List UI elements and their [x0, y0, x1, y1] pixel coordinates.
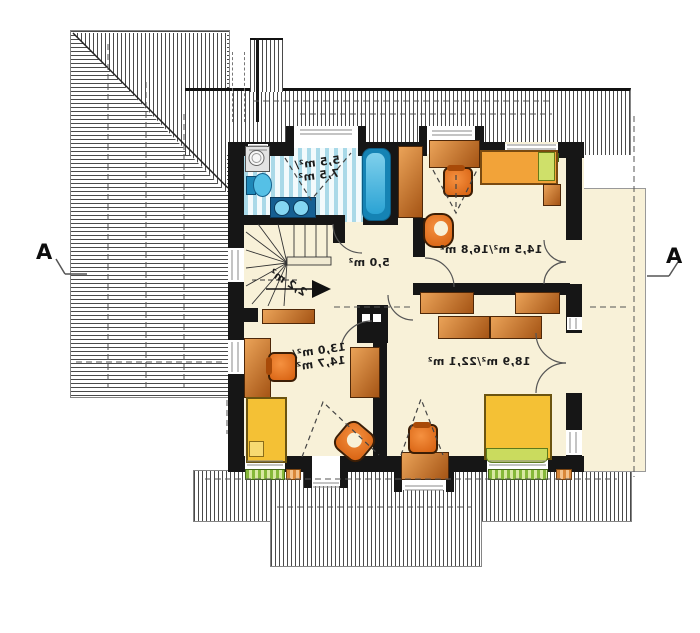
wardrobe	[398, 146, 423, 218]
dormer-recess-south-1	[312, 456, 340, 486]
sink-bowl	[293, 200, 309, 216]
attic-side-space	[575, 188, 646, 472]
sink-bowl	[274, 200, 290, 216]
room-label-bedroom-bottom-right: 18,9 m²/22,1 m²	[418, 355, 540, 368]
window-box	[488, 469, 548, 480]
window-box	[245, 469, 285, 480]
chair-backrest	[266, 357, 272, 375]
armchair-seat	[434, 221, 448, 236]
chimney	[357, 305, 388, 343]
wall-segment	[228, 456, 245, 472]
wardrobe	[350, 347, 380, 398]
chair-backrest	[447, 165, 465, 171]
wall-stub-stairs	[333, 215, 345, 243]
window	[228, 248, 244, 282]
window	[567, 317, 582, 330]
bed-foot-bench	[486, 448, 548, 463]
armchair-seat	[344, 430, 365, 451]
room-label-line: 18,9 m²/22,1 m²	[427, 355, 530, 368]
bed-pillow	[249, 441, 264, 457]
chimney-flue	[373, 314, 381, 322]
wardrobe	[515, 292, 560, 314]
section-marker-right: A	[666, 244, 682, 268]
chair-backrest	[413, 422, 431, 428]
dormer-recess-north-1	[290, 126, 362, 148]
window	[228, 340, 244, 374]
wardrobe	[438, 316, 490, 339]
roof-left-slope	[70, 30, 230, 398]
sideboard	[262, 309, 315, 324]
room-label-line: 5,0 m²	[348, 256, 389, 269]
wall-stub-hall-south	[244, 308, 258, 322]
room-label-line: 14,5 m²/16,8 m²	[439, 243, 542, 256]
dormer-stub	[286, 126, 294, 156]
window-box	[286, 469, 301, 480]
desk	[401, 452, 449, 480]
roof-step-edge	[256, 38, 259, 122]
toilet	[253, 173, 272, 197]
washing-machine	[245, 146, 270, 172]
wall-segment	[450, 456, 487, 472]
dormer-stub	[340, 456, 348, 488]
bed-pillow	[538, 152, 555, 181]
office-chair	[408, 424, 438, 454]
section-marker-left: A	[36, 240, 52, 264]
wall-segment	[566, 393, 582, 430]
roof-band-top-step	[250, 38, 283, 92]
wardrobe	[490, 316, 542, 339]
floor-plan-drawing: 5,5 m²/ 7,5 m² 14,5 m²/16,8 m² 5,0 m² 2,…	[0, 0, 700, 633]
roof-hidden-edge-dashed	[232, 52, 245, 122]
bathtub-basin	[366, 153, 385, 214]
section-marker-letter: A	[36, 240, 52, 264]
section-marker-letter: A	[666, 244, 682, 268]
window	[566, 430, 582, 455]
chimney-flue	[362, 314, 370, 322]
window-box	[556, 469, 572, 480]
dormer-stub	[304, 456, 312, 488]
desk	[429, 140, 480, 168]
nightstand	[543, 184, 561, 206]
wardrobe	[420, 292, 474, 314]
wall-west	[228, 142, 244, 472]
room-label-hallway: 5,0 m²	[338, 256, 400, 269]
wall-segment	[566, 142, 582, 240]
room-label-bedroom-top-right: 14,5 m²/16,8 m²	[425, 243, 557, 256]
office-chair	[443, 167, 473, 197]
